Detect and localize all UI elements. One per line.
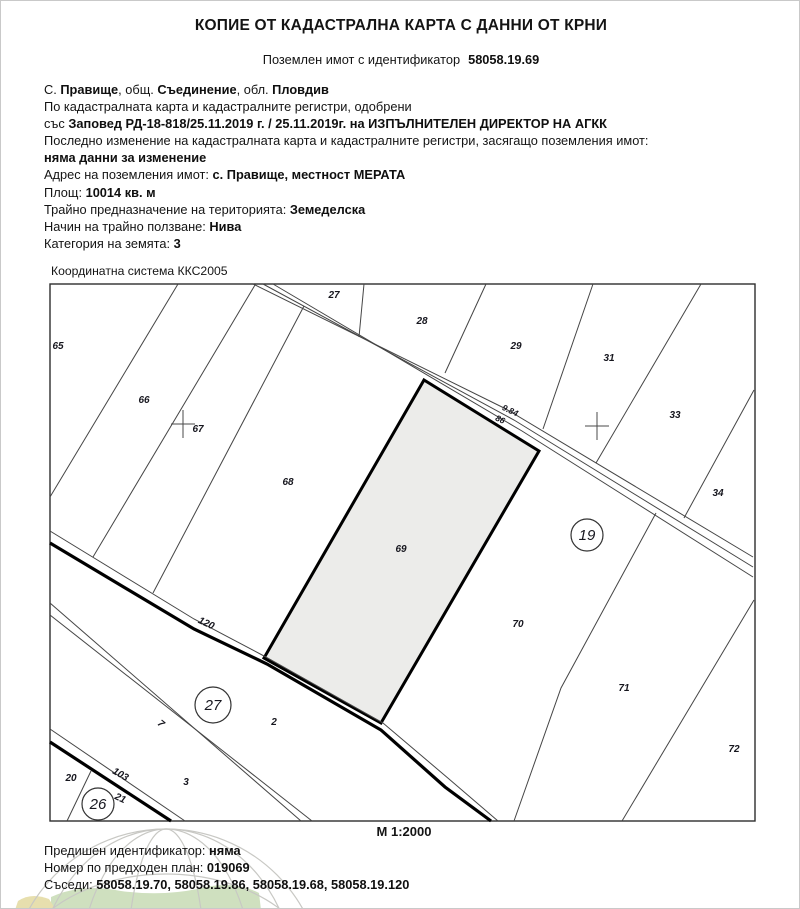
grid-cross-icon — [171, 410, 195, 438]
parcel-boundary — [445, 284, 486, 373]
previous-plan-value: 019069 — [207, 860, 250, 875]
parcel-boundary — [543, 284, 593, 429]
parcel-boundary — [514, 513, 656, 821]
cadastral-map: 19 27 26 65 66 67 68 69 70 71 72 27 28 2… — [1, 1, 800, 909]
parcel-label-68: 68 — [282, 477, 294, 488]
parcel-label-72: 72 — [728, 744, 740, 755]
parcel-boundary — [50, 284, 178, 497]
region-number: 19 — [579, 527, 596, 544]
parcel-label-27: 27 — [327, 290, 340, 301]
footer-block: Предишен идентификатор: няма Номер по пр… — [44, 842, 409, 893]
parcel-boundary — [359, 284, 364, 337]
text-segment: Предишен идентификатор: — [44, 843, 209, 858]
parcel-label-70: 70 — [512, 619, 524, 630]
region-circle-19: 19 — [571, 519, 603, 551]
text-segment: Номер по предходен план: — [44, 860, 207, 875]
parcel-label-34: 34 — [712, 488, 724, 499]
parcel-boundary — [93, 285, 255, 557]
region-number: 27 — [204, 697, 222, 714]
footer-line-previous-id: Предишен идентификатор: няма — [44, 842, 409, 859]
parcel-label-31: 31 — [603, 353, 615, 364]
parcel-boundary — [153, 306, 304, 593]
cadastral-document-page: КОПИЕ ОТ КАДАСТРАЛНА КАРТА С ДАННИ ОТ КР… — [0, 0, 800, 909]
footer-line-neighbors: Съседи: 58058.19.70, 58058.19.86, 58058.… — [44, 876, 409, 893]
parcel-boundary — [596, 284, 701, 463]
parcel-label-65: 65 — [52, 341, 64, 352]
previous-id-value: няма — [209, 843, 241, 858]
parcel-label-69: 69 — [395, 544, 407, 555]
parcel-label-66: 66 — [138, 395, 150, 406]
road-label-7: 7 — [155, 718, 167, 730]
parcel-label-28: 28 — [415, 316, 428, 327]
footer-line-previous-plan: Номер по предходен план: 019069 — [44, 859, 409, 876]
region-number: 26 — [89, 796, 107, 813]
neighbors-value: 58058.19.70, 58058.19.86, 58058.19.68, 5… — [96, 877, 409, 892]
parcel-label-29: 29 — [509, 341, 522, 352]
region-circle-26: 26 — [82, 788, 114, 820]
road-7-edge — [50, 603, 301, 821]
parcel-label-2: 2 — [270, 717, 277, 728]
upper-road-axis — [263, 284, 753, 567]
parcel-label-67: 67 — [192, 424, 204, 435]
parcel-label-33: 33 — [669, 410, 681, 421]
parcel-label-71: 71 — [618, 683, 630, 694]
parcel-label-3: 3 — [183, 777, 189, 788]
region-circle-27: 27 — [195, 687, 231, 723]
text-segment: Съседи: — [44, 877, 96, 892]
parcel-boundary — [622, 600, 754, 821]
grid-cross-icon — [585, 412, 609, 440]
parcel-label-20: 20 — [64, 773, 77, 784]
